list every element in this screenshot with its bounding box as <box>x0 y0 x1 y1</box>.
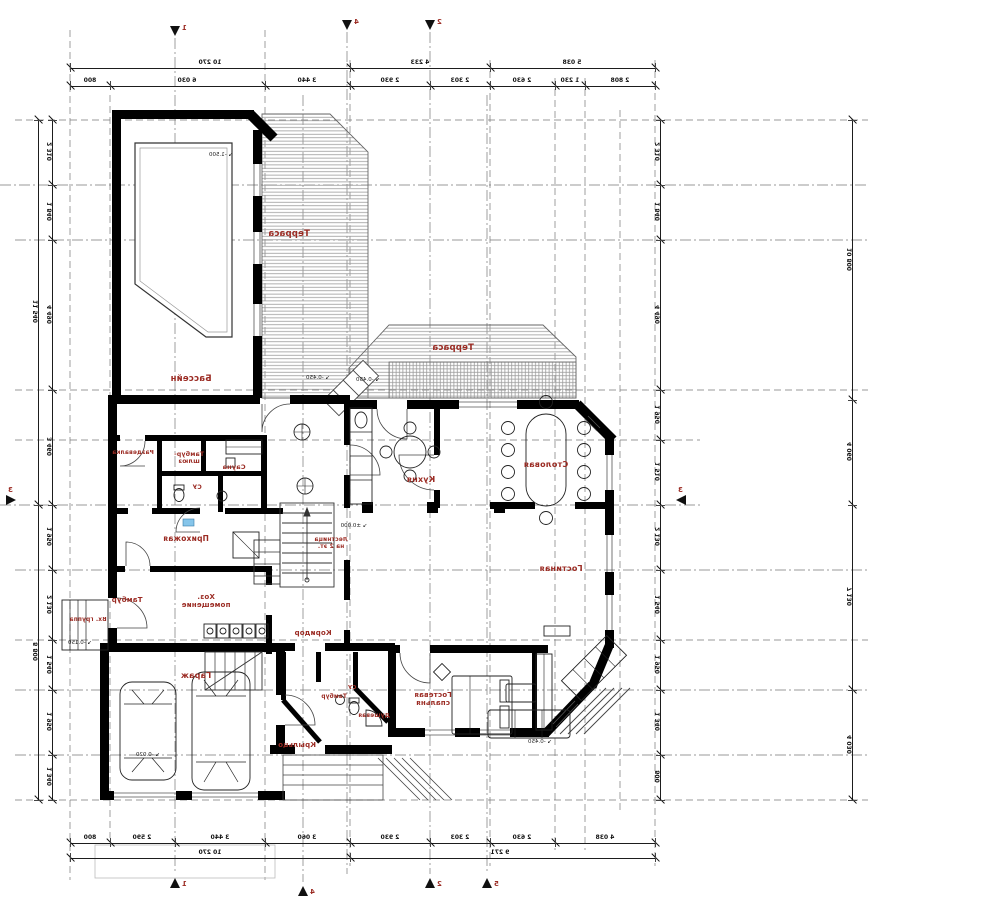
grid-axes <box>0 30 868 882</box>
utility-appliances <box>204 624 268 638</box>
swimming-pool <box>135 143 232 337</box>
driveway-outline <box>95 845 275 878</box>
washbasin-2 <box>336 696 345 705</box>
wardrobe <box>536 654 552 730</box>
kitchen-table <box>380 422 440 482</box>
entry-porch-west <box>62 600 108 650</box>
guest-bed <box>434 664 512 734</box>
plan-geometry <box>0 0 1000 908</box>
porch-steps <box>283 755 452 800</box>
tv-cabinet <box>544 626 570 636</box>
toilet-2 <box>349 698 359 715</box>
door-arcs <box>117 404 434 725</box>
hall-cabinet <box>233 532 259 558</box>
round-columns <box>294 424 313 494</box>
kitchen-counter <box>350 408 372 504</box>
coffee-table <box>506 684 536 702</box>
sauna-bench <box>226 440 262 467</box>
window-marker-blue <box>183 519 194 526</box>
toilet-1 <box>174 485 184 502</box>
terrace-deck-east <box>349 325 576 398</box>
garage-stairs <box>205 652 262 690</box>
terrace-deck-north <box>262 114 368 398</box>
floor-plan-sheet: БассейнТеррасаТеррасаРаздевалкаТамбур- ш… <box>0 0 1000 908</box>
car-1 <box>120 682 176 780</box>
